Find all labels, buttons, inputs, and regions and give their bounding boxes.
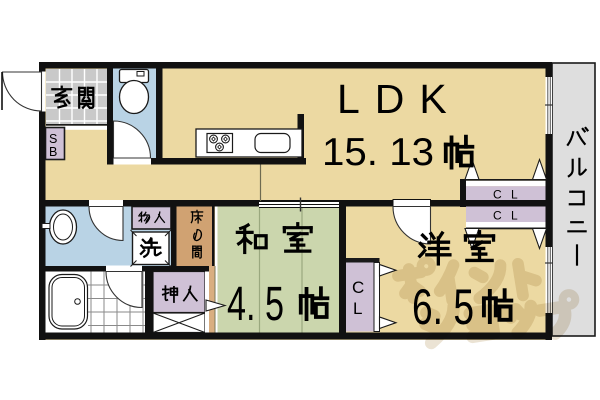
svg-text:C: C	[352, 278, 364, 297]
svg-text:LDK: LDK	[337, 76, 462, 122]
svg-text:S: S	[49, 132, 57, 146]
svg-text:4. 5: 4. 5	[227, 278, 284, 331]
svg-text:B: B	[49, 145, 57, 159]
svg-text:L: L	[353, 299, 362, 318]
svg-text:C L: C L	[493, 188, 521, 202]
svg-text:C L: C L	[493, 209, 521, 223]
svg-text:15. 13: 15. 13	[322, 131, 434, 174]
